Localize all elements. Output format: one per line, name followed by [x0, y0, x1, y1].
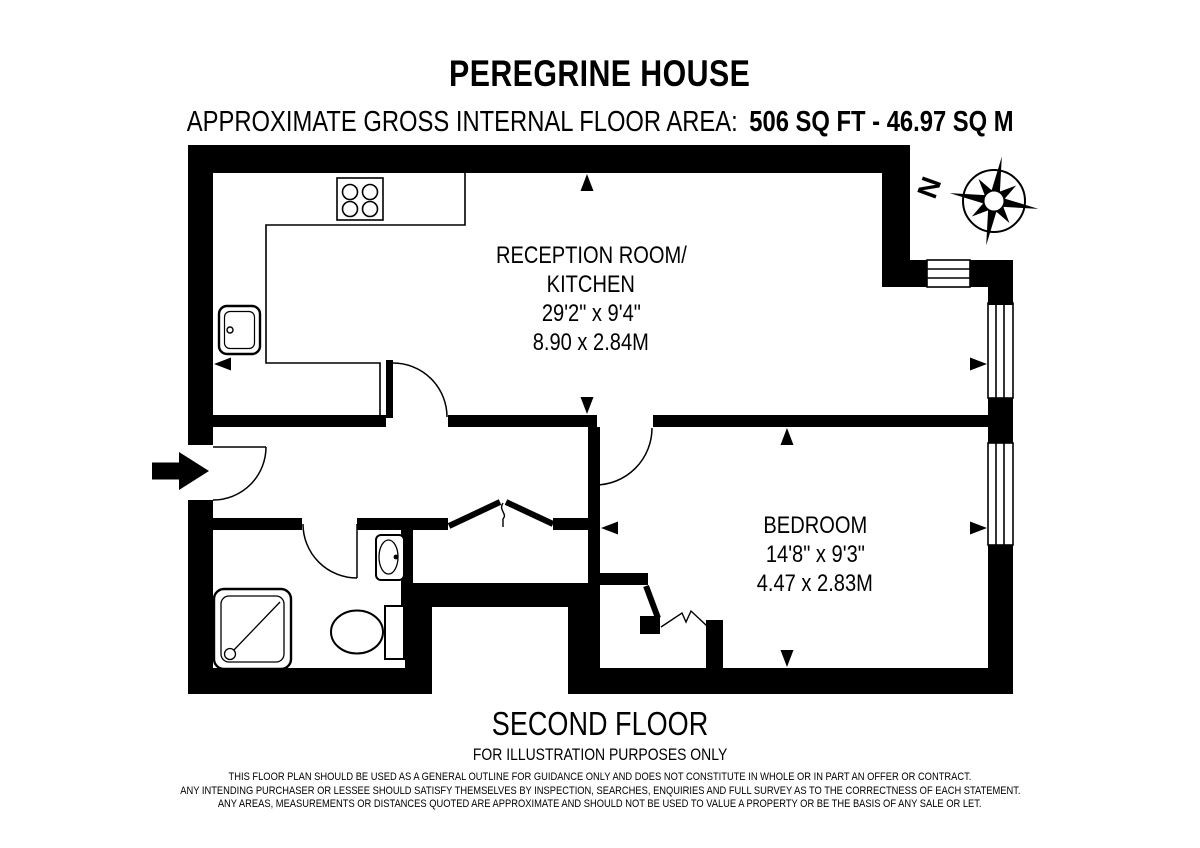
sink-icon — [219, 306, 260, 354]
purpose-note-text: FOR ILLUSTRATION PURPOSES ONLY — [473, 745, 727, 765]
kitchen-door — [393, 363, 447, 417]
floor-area-inner: APPROXIMATE GROSS INTERNAL FLOOR AREA:50… — [187, 106, 1014, 139]
wardrobe-leaf — [646, 586, 658, 618]
compass-rose: N — [911, 149, 1046, 253]
hob-burner — [363, 202, 378, 217]
page-title-text: PEREGRINE HOUSE — [449, 53, 750, 95]
bedroom-dimensions-metric-text: 4.47 x 2.83M — [757, 569, 873, 598]
toilet-cistern — [385, 606, 404, 659]
reception-name-line1-text: RECEPTION ROOM/ — [496, 241, 687, 270]
shower-drain — [225, 649, 236, 660]
arrow-reception-width-right — [970, 358, 987, 371]
floor-area-value: 506 SQ FT - 46.97 SQ M — [749, 106, 1013, 138]
arrow-bedroom-width-left — [601, 522, 618, 535]
bathroom-fixtures — [214, 535, 404, 669]
entrance-arrow-icon — [152, 452, 209, 490]
bedroom-dimensions-metric: 4.47 x 2.83M — [665, 569, 965, 598]
window-frame — [988, 303, 1013, 398]
wall-wardrobe-block — [640, 616, 660, 634]
arrow-reception-height-down — [581, 397, 594, 414]
floor-name-text: SECOND FLOOR — [492, 705, 709, 743]
wall-wardrobe-corner — [706, 620, 723, 673]
toilet-bowl — [331, 611, 383, 654]
page-title: PEREGRINE HOUSE — [0, 53, 1200, 95]
hob-burner — [343, 185, 358, 200]
door-swing-arc — [213, 447, 266, 500]
reception-dimensions-metric: 8.90 x 2.84M — [441, 328, 741, 357]
bedroom-label: BEDROOM 14'8" x 9'3" 4.47 x 2.83M — [665, 511, 965, 598]
wall-bathroom-top-a — [213, 518, 302, 530]
purpose-note: FOR ILLUSTRATION PURPOSES ONLY — [0, 745, 1200, 765]
wall-top — [188, 145, 910, 173]
entry-door — [213, 447, 266, 500]
wall-step-horizontal-b — [970, 260, 1013, 287]
floorplan-page: N PEREGRINE HOUSE APPROXIMATE GROSS INTE… — [0, 0, 1200, 848]
wall-divider-2 — [448, 415, 597, 427]
reception-dimensions-imperial: 29'2" x 9'4" — [441, 299, 741, 328]
floor-area-label: APPROXIMATE GROSS INTERNAL FLOOR AREA: — [187, 106, 738, 138]
disclaimer-line: THIS FLOOR PLAN SHOULD BE USED AS A GENE… — [0, 771, 1200, 785]
washbasin-icon — [376, 535, 404, 580]
shower-icon — [214, 589, 291, 669]
compass-north-label: N — [911, 173, 947, 203]
bedroom-dimensions-imperial-text: 14'8" x 9'3" — [765, 540, 864, 569]
kitchen-fixtures — [219, 173, 465, 415]
compass-hub — [984, 191, 1005, 212]
arrow-reception-height-up — [581, 174, 594, 191]
wall-bottom-right — [568, 668, 1013, 694]
reception-dimensions-metric-text: 8.90 x 2.84M — [533, 328, 649, 357]
hob-burner — [343, 202, 358, 217]
cupboard-bifold-doors — [449, 502, 553, 527]
sink-tap — [227, 327, 233, 333]
disclaimer-line: ANY INTENDING PURCHASER OR LESSEE SHOULD… — [0, 785, 1200, 799]
wardrobe-squiggle — [661, 611, 707, 627]
hob-burner — [363, 185, 378, 200]
window-top-step — [927, 260, 970, 287]
reception-room-label: RECEPTION ROOM/ KITCHEN 29'2" x 9'4" 8.9… — [441, 241, 741, 357]
bedroom-name-text: BEDROOM — [763, 511, 867, 540]
bifold-squiggle — [502, 503, 505, 527]
floor-name: SECOND FLOOR — [0, 705, 1200, 743]
reception-name-line2: KITCHEN — [441, 270, 741, 299]
wall-right-corner — [988, 283, 1013, 305]
bifold-leaf-right — [506, 502, 553, 524]
wall-bottom-left — [188, 668, 432, 694]
wall-bedroom-west — [588, 427, 600, 583]
arrow-bedroom-width-right — [970, 522, 987, 535]
bedroom-door — [595, 428, 652, 485]
arrow-bedroom-height-down — [781, 650, 794, 667]
bifold-leaf-left — [449, 502, 500, 526]
window-reception — [988, 303, 1013, 398]
bedroom-name: BEDROOM — [665, 511, 965, 540]
arrow-bedroom-height-up — [781, 428, 794, 445]
wall-cupboard-jamb — [553, 518, 597, 530]
disclaimer-line-2-text: ANY INTENDING PURCHASER OR LESSEE SHOULD… — [180, 785, 1020, 799]
window-frame — [988, 443, 1013, 545]
toilet-icon — [331, 606, 404, 659]
reception-dimensions-imperial-text: 29'2" x 9'4" — [541, 299, 640, 328]
reception-name-line1: RECEPTION ROOM/ — [441, 241, 741, 270]
wall-left-upper — [188, 145, 213, 445]
wall-step-horizontal-a — [882, 260, 927, 287]
disclaimer-line-1-text: THIS FLOOR PLAN SHOULD BE USED AS A GENE… — [229, 771, 972, 785]
door-swing-arc — [595, 428, 652, 485]
wall-bedroom-stub — [588, 573, 648, 585]
reception-name-line2-text: KITCHEN — [547, 270, 635, 299]
wall-right-mid — [988, 398, 1013, 443]
disclaimer-line-3-text: ANY AREAS, MEASUREMENTS OR DISTANCES QUO… — [218, 798, 982, 812]
door-swing-arc — [303, 524, 357, 578]
basin-tap — [394, 555, 399, 560]
bathroom-door — [303, 524, 357, 578]
arrow-reception-width-left — [214, 358, 231, 371]
floor-area-line: APPROXIMATE GROSS INTERNAL FLOOR AREA:50… — [0, 106, 1200, 139]
door-swing-arc — [393, 363, 447, 417]
wall-divider-3 — [653, 415, 988, 427]
door-leaf-kitchen — [386, 360, 393, 418]
window-frame — [927, 260, 970, 287]
window-bedroom — [988, 443, 1013, 545]
wall-divider-1 — [188, 415, 386, 427]
wall-left-lower — [188, 500, 213, 694]
wall-notch-top — [401, 583, 600, 607]
wall-notch-left — [405, 607, 432, 672]
walls — [188, 145, 1013, 694]
disclaimer-line: ANY AREAS, MEASUREMENTS OR DISTANCES QUO… — [0, 798, 1200, 812]
disclaimer-block: THIS FLOOR PLAN SHOULD BE USED AS A GENE… — [0, 771, 1200, 812]
hob-icon — [337, 178, 383, 220]
bedroom-dimensions-imperial: 14'8" x 9'3" — [665, 540, 965, 569]
